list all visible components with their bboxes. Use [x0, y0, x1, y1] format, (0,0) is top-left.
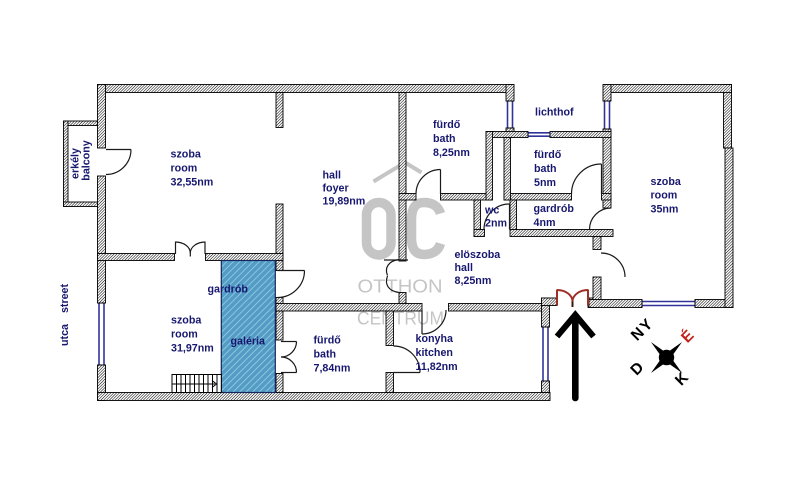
- svg-text:wc: wc: [484, 205, 499, 217]
- svg-text:hall: hall: [323, 170, 341, 182]
- svg-text:room: room: [171, 163, 198, 175]
- svg-text:galéria: galéria: [231, 336, 267, 348]
- svg-text:szoba: szoba: [171, 315, 202, 327]
- svg-text:11,82nm: 11,82nm: [416, 361, 458, 373]
- svg-text:elöszoba: elöszoba: [455, 249, 502, 261]
- svg-text:fürdő: fürdő: [534, 149, 562, 161]
- svg-text:19,89nm: 19,89nm: [323, 196, 366, 208]
- svg-text:31,97nm: 31,97nm: [171, 343, 214, 355]
- svg-text:utca: utca: [59, 323, 71, 346]
- svg-text:hall: hall: [455, 262, 473, 274]
- svg-text:szoba: szoba: [651, 176, 682, 188]
- svg-text:2nm: 2nm: [485, 218, 507, 230]
- svg-text:5nm: 5nm: [534, 177, 556, 189]
- svg-text:8,25nm: 8,25nm: [433, 147, 470, 159]
- svg-text:fürdő: fürdő: [433, 119, 461, 131]
- svg-text:room: room: [651, 190, 678, 202]
- svg-text:szoba: szoba: [171, 149, 202, 161]
- svg-text:4nm: 4nm: [534, 217, 556, 229]
- svg-text:room: room: [171, 329, 198, 341]
- svg-text:gardrób: gardrób: [534, 203, 575, 215]
- svg-text:bath: bath: [314, 349, 337, 361]
- svg-text:7,84nm: 7,84nm: [314, 363, 351, 375]
- svg-text:bath: bath: [534, 163, 557, 175]
- svg-text:gardrób: gardrób: [208, 284, 249, 296]
- svg-text:konyha: konyha: [416, 333, 454, 345]
- svg-text:lichthof: lichthof: [535, 107, 574, 119]
- svg-text:fürdő: fürdő: [314, 335, 342, 347]
- svg-text:balcony: balcony: [81, 140, 93, 180]
- svg-text:8,25nm: 8,25nm: [455, 275, 492, 287]
- svg-text:street: street: [59, 284, 71, 314]
- svg-text:32,55nm: 32,55nm: [171, 177, 214, 189]
- svg-text:bath: bath: [433, 133, 456, 145]
- svg-text:kitchen: kitchen: [416, 347, 453, 359]
- svg-text:35nm: 35nm: [651, 204, 679, 216]
- svg-text:foyer: foyer: [323, 183, 349, 195]
